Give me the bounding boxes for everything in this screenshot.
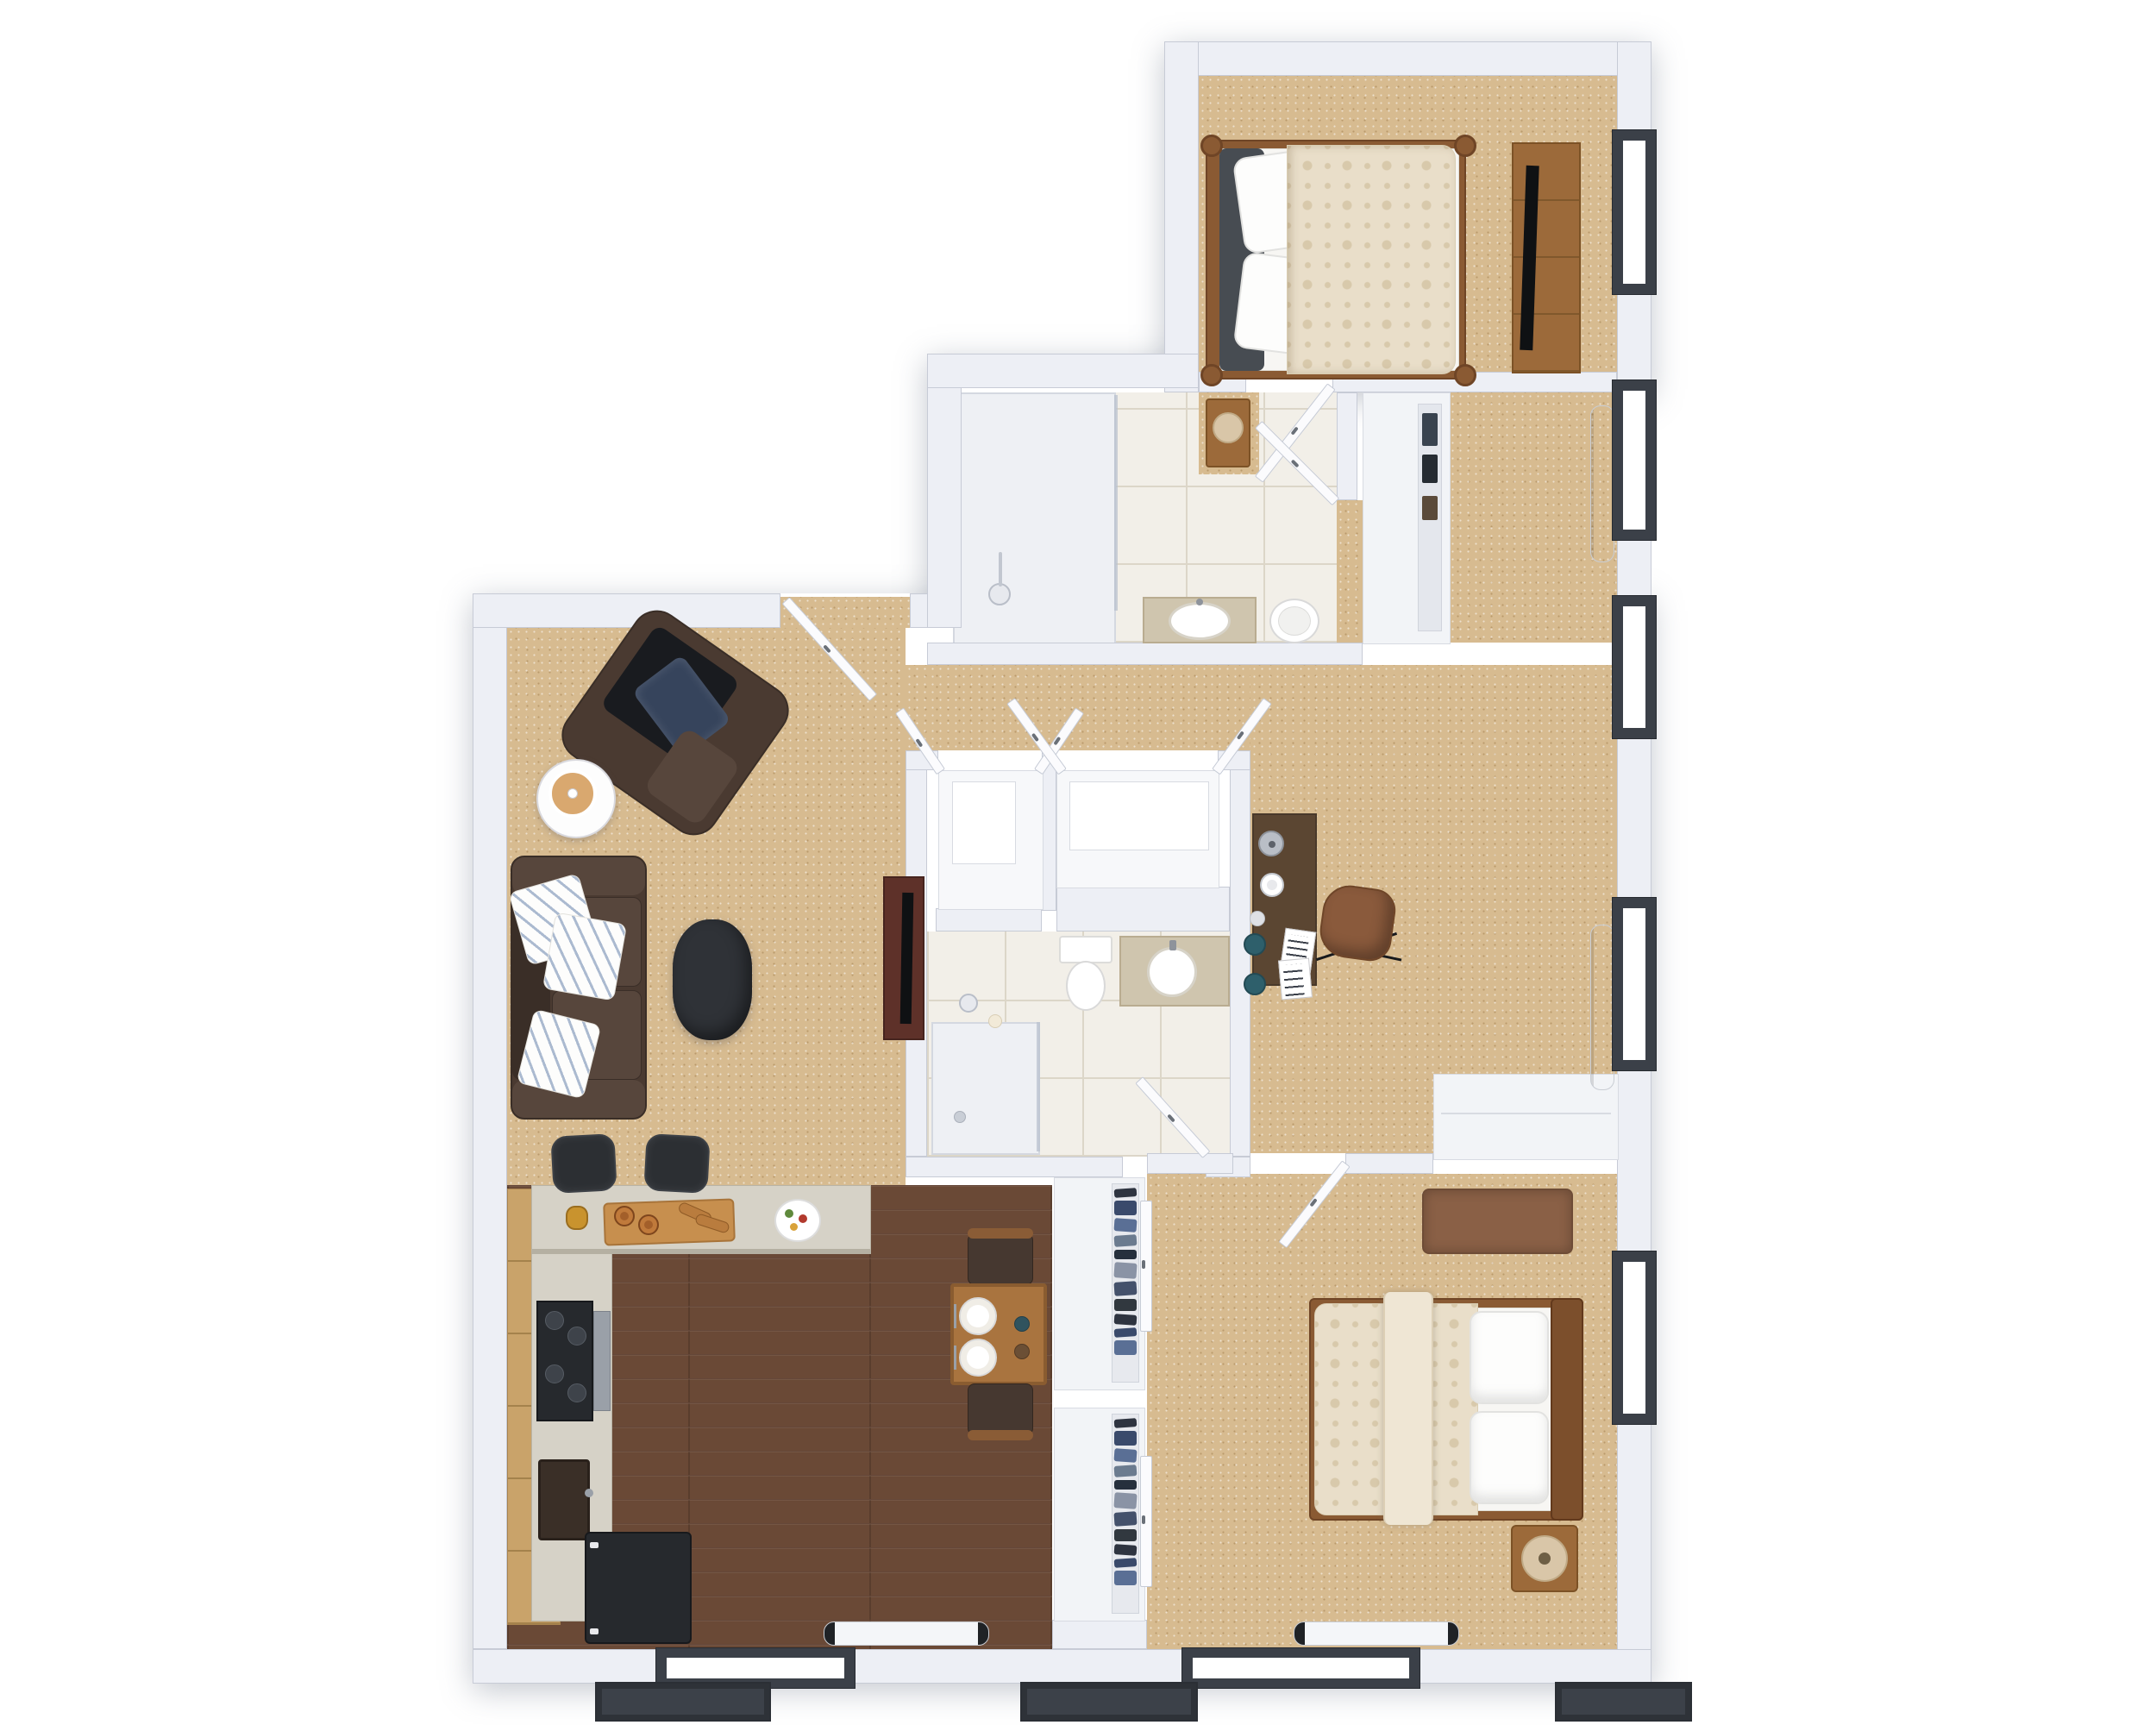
window [1612,1251,1657,1425]
clothes-item [1114,1299,1137,1311]
bedpost [1454,364,1476,386]
clothes-item [1114,1558,1138,1568]
clothes-item [1114,1218,1138,1233]
bar-stool [643,1133,710,1194]
bed-2-headboard [1551,1298,1583,1521]
toilet-tank [1059,936,1112,963]
clothes-item [1113,1492,1137,1509]
clothes-item [1114,1465,1138,1477]
shower-glass-partition [1037,1022,1040,1151]
oval-sink [1169,602,1231,640]
clothes-item [1114,1327,1138,1338]
wall [1164,41,1651,76]
entry-hall-floor [906,665,1250,750]
clothes-item [1113,1511,1137,1527]
bowl [1014,1344,1030,1359]
pretzel [614,1206,635,1226]
toilet-seat [1278,606,1311,636]
bed-2-pillow [1470,1311,1549,1404]
built-in-closet [1433,1074,1619,1160]
bench [1422,1189,1573,1254]
shelf-item [1422,455,1438,483]
bedpost [1200,364,1223,386]
wall [1345,1153,1433,1174]
clothes-item [1113,1281,1137,1296]
cutlery [954,1345,956,1370]
radiator [1294,1621,1459,1646]
window-planter [595,1682,771,1722]
hall-closet-interior [1418,404,1442,631]
closet-east-shelf [1069,781,1209,850]
wall [473,1649,1651,1684]
dining-chair-frame [968,1430,1033,1440]
radiator [1590,405,1614,562]
teapot-knob [1269,841,1275,848]
clothes-item [1114,1250,1137,1259]
wall [927,354,962,628]
floor-plan-render [0,0,2156,1725]
table-lamp [1213,412,1244,443]
wardrobe-sliding-panel [1140,1201,1152,1332]
wall [1052,1620,1147,1649]
tv [900,893,914,1024]
bathroom-1-doorway-floor [1337,500,1363,643]
burner [567,1383,586,1402]
kitchen-sink [538,1459,590,1540]
window-planter [1020,1682,1198,1722]
clothes-item [1114,1234,1138,1247]
papers [1278,958,1313,1000]
teal-plate [1244,933,1266,956]
wall [927,643,1363,665]
shower-drain [954,1111,966,1123]
bowl [1014,1316,1030,1332]
clothes-item [1114,1544,1138,1556]
clothes-item [1114,1480,1137,1490]
radiator [1590,925,1614,1090]
faucet [1196,599,1203,605]
window [1612,379,1657,541]
dining-chair [968,1233,1033,1285]
shelf-item [1422,496,1438,520]
wall [1164,41,1199,392]
wall [1147,1153,1233,1174]
pretzel [638,1214,659,1235]
clothes-item [1114,1448,1138,1463]
clothes-item [1114,1188,1138,1198]
clothes-item [1114,1418,1138,1428]
clothes-item [1114,1201,1137,1215]
bathroom-2-shower-tray [931,1022,1040,1155]
wall [1337,392,1357,500]
shower-fixture [959,994,978,1013]
burner [567,1327,586,1345]
closet-west-storage-box [952,781,1016,864]
wall [1056,887,1230,931]
clothes-item [1114,1431,1137,1446]
wardrobe [1054,1177,1145,1390]
shelf-item [1422,413,1438,446]
clothes-item [1114,1314,1138,1326]
bar-stool [550,1133,617,1194]
window [1612,897,1657,1071]
cutlery [954,1304,956,1328]
window [1612,129,1657,295]
burner [545,1311,564,1330]
wardrobe-sliding-panel [1140,1456,1152,1587]
wardrobe [1054,1408,1145,1621]
dinner-plate [959,1297,997,1335]
wall [927,354,1199,388]
palm-pillow [542,912,627,1000]
bed-2-pillow [1470,1411,1549,1504]
window [1181,1647,1420,1689]
round-sink [1147,947,1197,997]
wall [473,593,780,628]
cup-and-saucer [1260,873,1284,897]
shower-hose [999,552,1002,586]
clothes-item [1114,1529,1137,1541]
oven-front [593,1311,611,1411]
dining-chair-frame [968,1228,1033,1239]
ottoman-coffee-table [673,919,752,1040]
teal-plate [1244,973,1266,995]
small-cup [1250,911,1265,926]
clothes-item [1114,1571,1137,1585]
clothes-item [1114,1340,1137,1355]
bed-1-duvet [1287,145,1456,374]
jar [566,1206,588,1230]
sphere-lamp-top [1539,1552,1551,1565]
toilet [1066,961,1106,1011]
bedpost [1200,135,1223,157]
wall [473,593,507,1649]
radiator [824,1621,989,1646]
soap-dish [988,1014,1002,1028]
wall [1042,750,1056,911]
hanging-clothes [1113,1415,1138,1615]
dinner-plate [959,1339,997,1377]
bedpost [1454,135,1476,157]
wall [906,1157,1123,1177]
bathroom-1-shower [953,392,1116,646]
hanging-clothes [1113,1185,1138,1384]
refrigerator [585,1532,692,1644]
wall [936,908,1042,931]
serving-plate [774,1199,821,1242]
sink-faucet [585,1489,593,1497]
faucet [1169,940,1176,950]
clothes-item [1113,1262,1137,1279]
table-lamp-finial [567,788,578,799]
burner [545,1364,564,1383]
window [1612,595,1657,739]
bed-2-throw-blanket [1383,1292,1433,1525]
shower-glass-partition [1114,395,1118,611]
gas-cooktop [536,1301,593,1421]
window-planter [1555,1682,1692,1722]
dining-chair [968,1383,1033,1435]
